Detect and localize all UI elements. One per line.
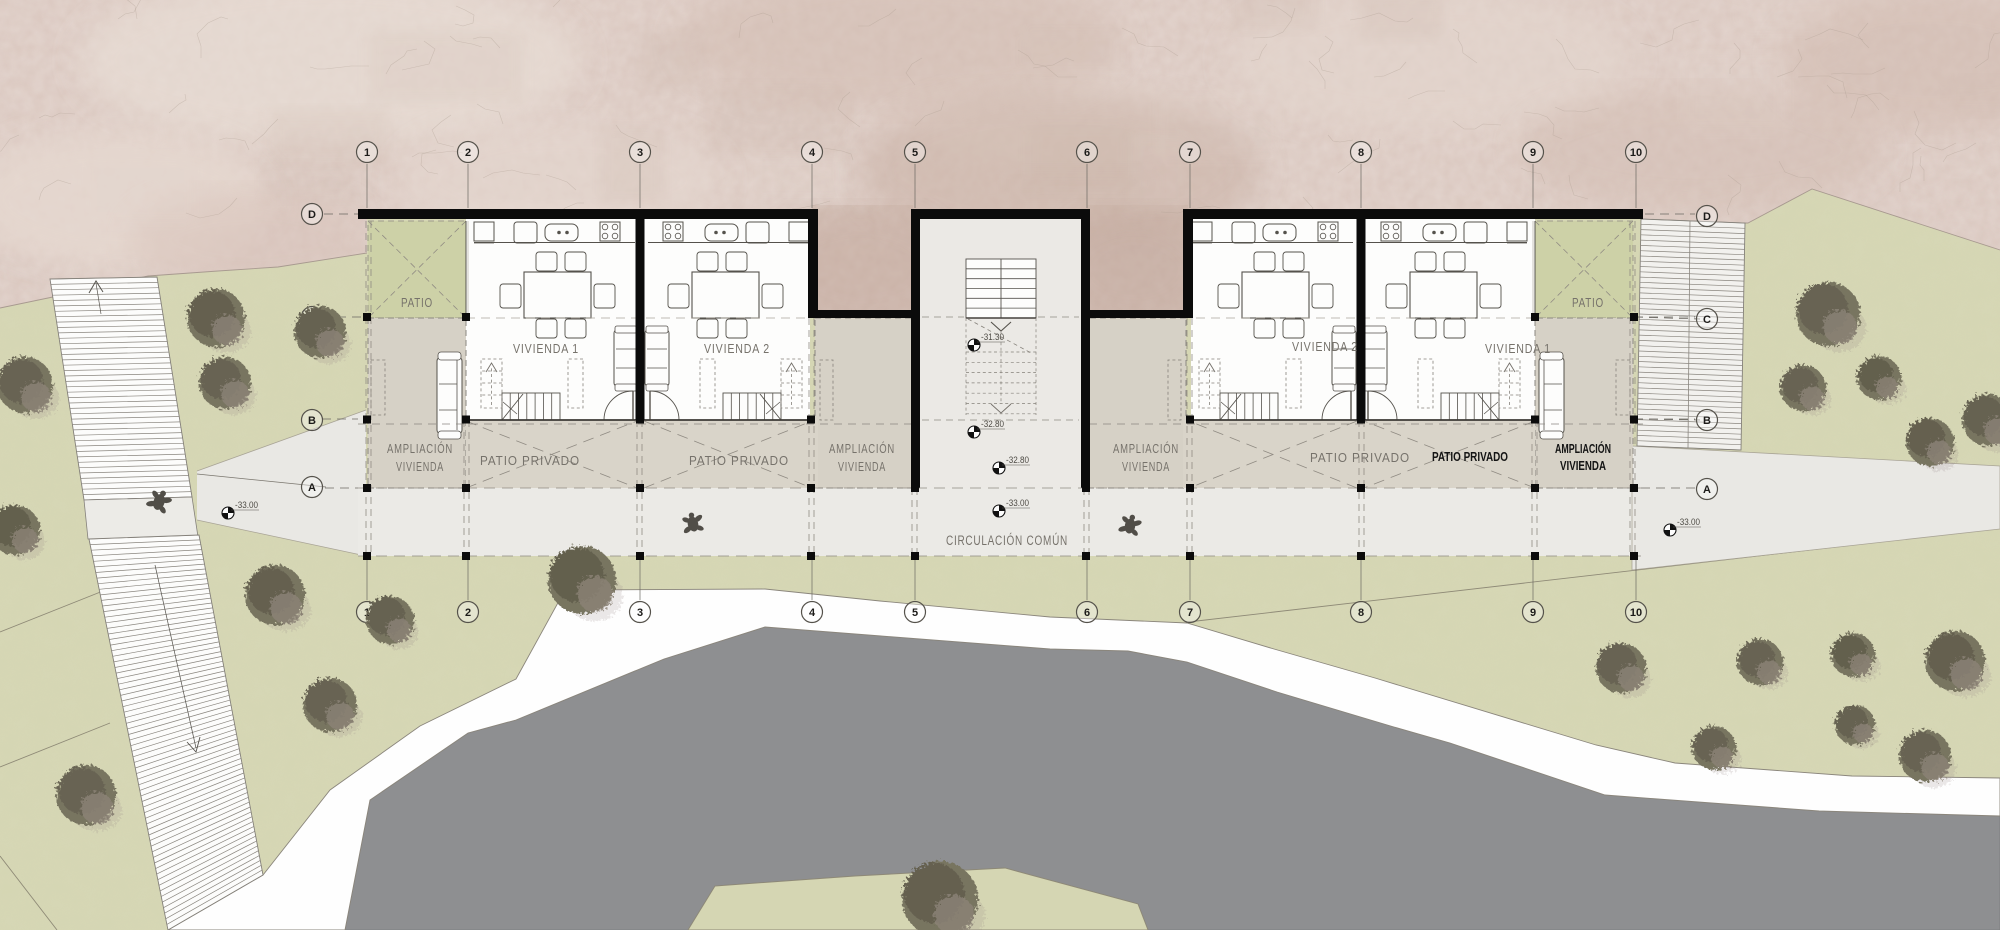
svg-text:8: 8 bbox=[1358, 607, 1364, 619]
svg-text:7: 7 bbox=[1187, 607, 1193, 619]
svg-text:VIVIENDA 1: VIVIENDA 1 bbox=[513, 341, 579, 356]
svg-text:PATIO PRIVADO: PATIO PRIVADO bbox=[1432, 450, 1508, 464]
svg-text:PATIO: PATIO bbox=[1572, 295, 1604, 310]
svg-text:-31.30: -31.30 bbox=[981, 332, 1004, 342]
svg-text:10: 10 bbox=[1630, 607, 1642, 619]
svg-text:4: 4 bbox=[809, 147, 816, 159]
svg-text:D: D bbox=[308, 209, 316, 221]
svg-text:-33.00: -33.00 bbox=[1677, 517, 1700, 527]
svg-text:VIVIENDA: VIVIENDA bbox=[396, 460, 444, 474]
svg-text:AMPLIACIÓN: AMPLIACIÓN bbox=[1555, 441, 1611, 456]
svg-text:3: 3 bbox=[637, 607, 643, 619]
svg-text:AMPLIACIÓN: AMPLIACIÓN bbox=[387, 441, 453, 456]
svg-text:C: C bbox=[1703, 314, 1711, 326]
svg-text:-33.00: -33.00 bbox=[235, 500, 258, 510]
svg-text:VIVIENDA: VIVIENDA bbox=[1560, 459, 1606, 473]
svg-text:AMPLIACIÓN: AMPLIACIÓN bbox=[1113, 441, 1179, 456]
svg-text:8: 8 bbox=[1358, 147, 1364, 159]
svg-text:PATIO PRIVADO: PATIO PRIVADO bbox=[480, 453, 580, 468]
svg-text:6: 6 bbox=[1084, 147, 1090, 159]
svg-text:5: 5 bbox=[912, 607, 918, 619]
svg-text:PATIO: PATIO bbox=[401, 295, 433, 310]
svg-text:9: 9 bbox=[1530, 607, 1536, 619]
svg-text:AMPLIACIÓN: AMPLIACIÓN bbox=[829, 441, 895, 456]
svg-text:VIVIENDA 2: VIVIENDA 2 bbox=[1292, 339, 1358, 354]
svg-text:A: A bbox=[1703, 484, 1711, 496]
svg-text:6: 6 bbox=[1084, 607, 1090, 619]
svg-text:A: A bbox=[308, 482, 316, 494]
svg-text:VIVIENDA: VIVIENDA bbox=[838, 460, 886, 474]
svg-text:PATIO PRIVADO: PATIO PRIVADO bbox=[689, 453, 789, 468]
svg-text:-33.00: -33.00 bbox=[1006, 498, 1029, 508]
svg-text:2: 2 bbox=[465, 607, 471, 619]
svg-text:3: 3 bbox=[637, 147, 643, 159]
svg-text:5: 5 bbox=[912, 147, 918, 159]
svg-text:B: B bbox=[1703, 415, 1711, 427]
svg-text:PATIO PRIVADO: PATIO PRIVADO bbox=[1310, 450, 1410, 465]
svg-text:4: 4 bbox=[809, 607, 816, 619]
svg-text:10: 10 bbox=[1630, 147, 1642, 159]
svg-text:B: B bbox=[308, 415, 316, 427]
svg-text:1: 1 bbox=[364, 147, 370, 159]
svg-text:-32.80: -32.80 bbox=[1006, 455, 1029, 465]
svg-text:VIVIENDA 1: VIVIENDA 1 bbox=[1485, 341, 1551, 356]
svg-text:-32.80: -32.80 bbox=[981, 419, 1004, 429]
svg-text:7: 7 bbox=[1187, 147, 1193, 159]
svg-text:D: D bbox=[1703, 211, 1711, 223]
svg-text:VIVIENDA 2: VIVIENDA 2 bbox=[704, 341, 770, 356]
svg-text:CIRCULACIÓN COMÚN: CIRCULACIÓN COMÚN bbox=[946, 533, 1068, 548]
svg-text:9: 9 bbox=[1530, 147, 1536, 159]
svg-text:VIVIENDA: VIVIENDA bbox=[1122, 460, 1170, 474]
svg-text:2: 2 bbox=[465, 147, 471, 159]
